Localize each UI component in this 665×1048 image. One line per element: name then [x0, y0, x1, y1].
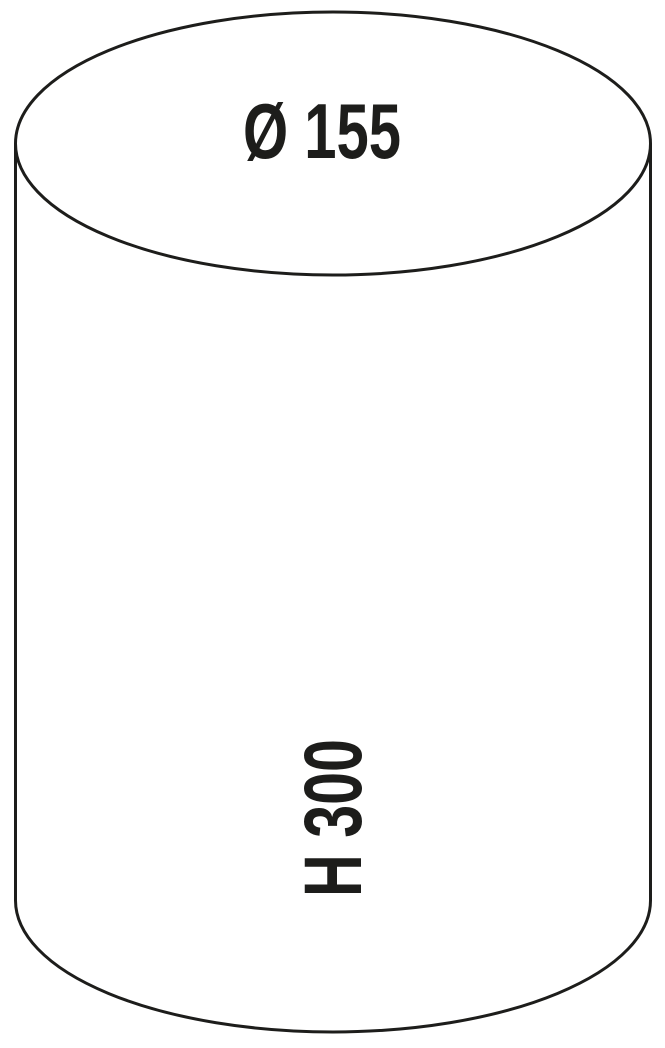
height-dimension-label: H 300 — [288, 739, 379, 897]
diameter-dimension-label: Ø 155 — [243, 87, 401, 175]
cylinder-diagram: Ø 155 H 300 — [0, 0, 665, 1048]
cylinder-bottom-arc — [16, 901, 651, 1032]
drawing-area: Ø 155 H 300 — [0, 0, 665, 1048]
